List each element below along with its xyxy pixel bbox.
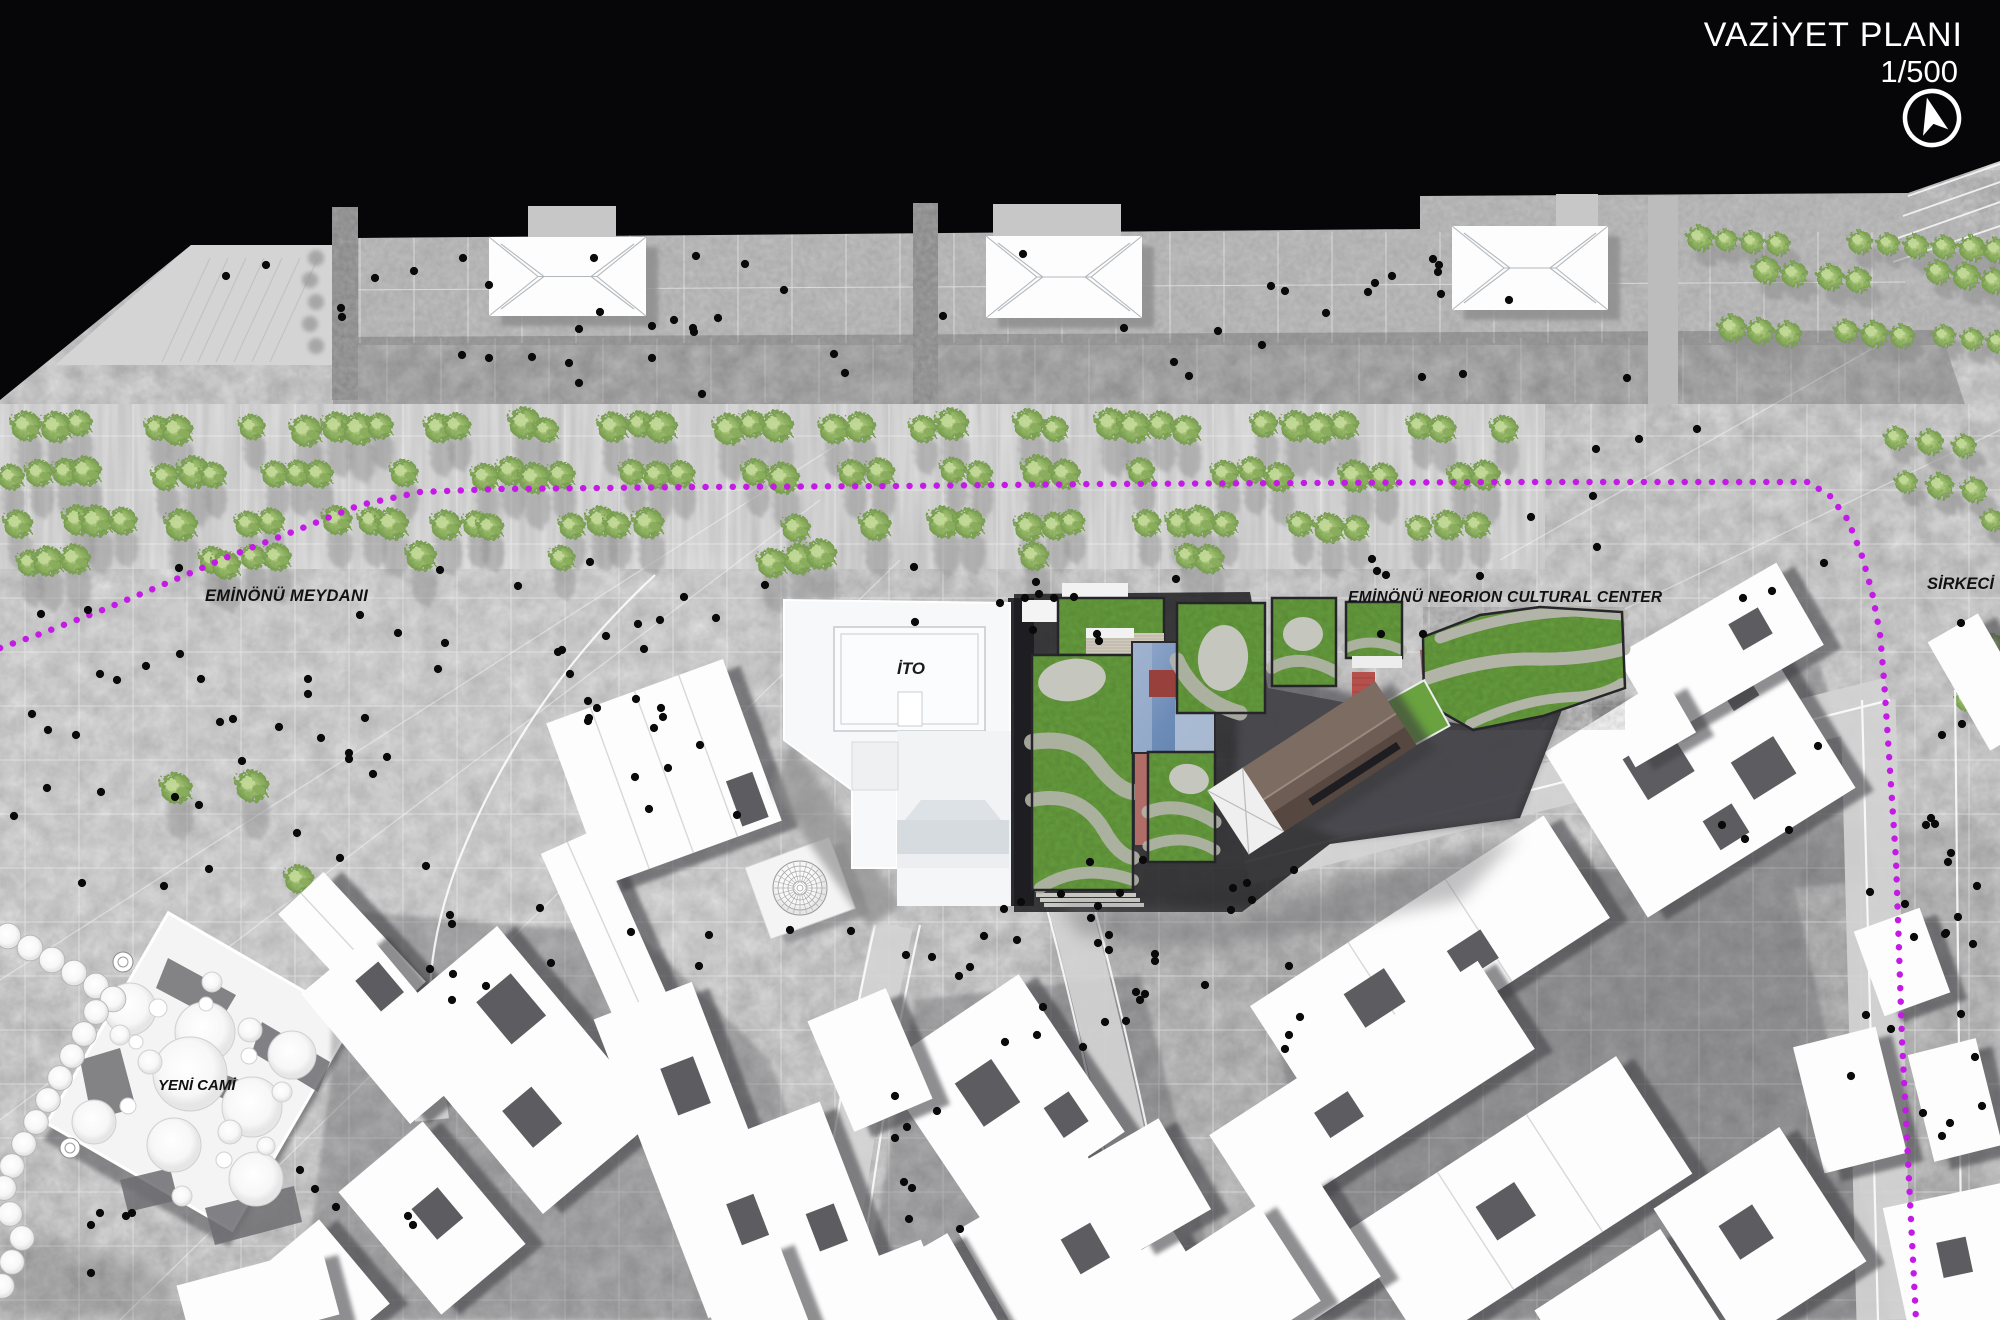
svg-text:EMİNÖNÜ NEORION CULTURAL CENTE: EMİNÖNÜ NEORION CULTURAL CENTER: [1348, 589, 1663, 606]
svg-text:YENİ CAMİ: YENİ CAMİ: [158, 1077, 236, 1094]
svg-text:İTO: İTO: [897, 659, 925, 678]
svg-text:VAZİYET PLANI: VAZİYET PLANI: [1704, 16, 1963, 54]
svg-text:1/500: 1/500: [1880, 54, 1958, 89]
svg-text:EMİNÖNÜ MEYDANI: EMİNÖNÜ MEYDANI: [205, 586, 368, 605]
svg-text:SİRKECİ: SİRKECİ: [1927, 575, 1995, 593]
